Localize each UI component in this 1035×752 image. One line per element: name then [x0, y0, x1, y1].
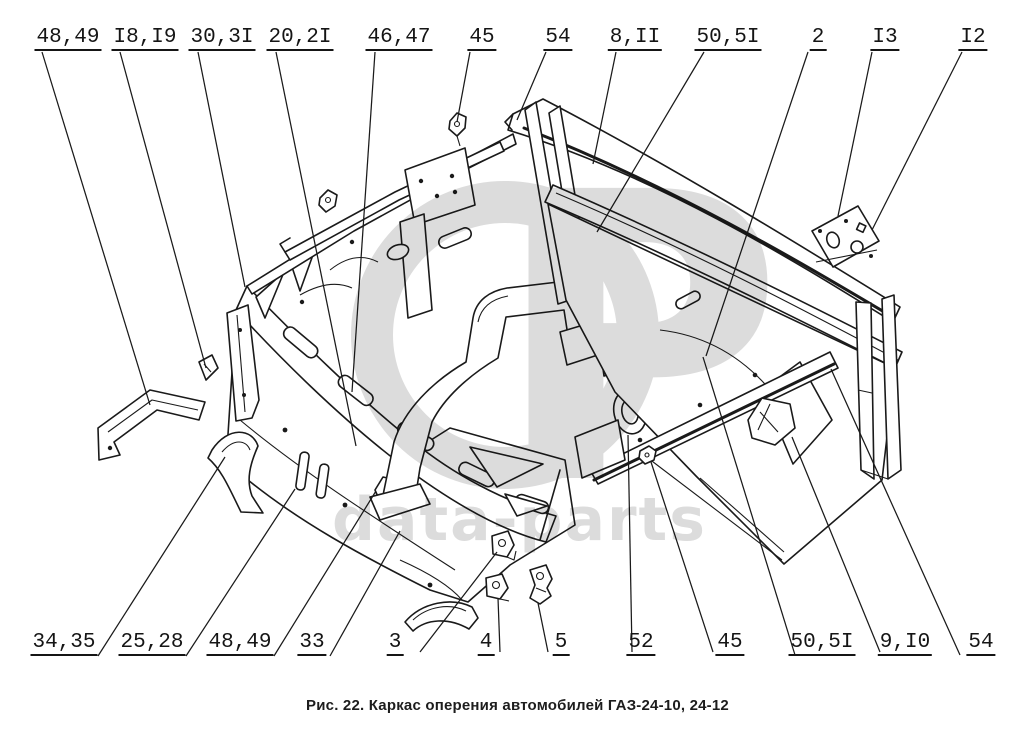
clip-left-rail	[319, 190, 337, 212]
part-label-top-12: I2	[958, 27, 987, 51]
part-label-bottom-25-28: 25,28	[118, 632, 185, 656]
leader-top-18-19	[120, 52, 206, 368]
part-label-top-2: 2	[810, 27, 827, 51]
leader-top-30-31	[198, 52, 245, 287]
part-label-bottom-4: 4	[478, 632, 495, 656]
part-label-bottom-9-10: 9,I0	[878, 632, 932, 656]
part-label-top-30-31: 30,3I	[188, 27, 255, 51]
part-label-bottom-48-49: 48,49	[206, 632, 273, 656]
bracket-plate	[812, 206, 879, 267]
part-label-bottom-3: 3	[387, 632, 404, 656]
figure-caption: Рис. 22. Каркас оперения автомобилей ГАЗ…	[0, 697, 1035, 714]
curved-strip	[405, 602, 478, 631]
part-label-top-18-19: I8,I9	[111, 27, 178, 51]
part-label-bottom-52: 52	[626, 632, 655, 656]
part-label-top-20-21: 20,2I	[266, 27, 333, 51]
part-label-top-54: 54	[543, 27, 572, 51]
part-label-bottom-50-51: 50,5I	[788, 632, 855, 656]
part-label-top-45: 45	[467, 27, 496, 51]
leader-top-45	[457, 52, 470, 122]
leader-top-13	[838, 52, 872, 216]
part-label-bottom-34-35: 34,35	[30, 632, 97, 656]
part-label-top-8-11: 8,II	[608, 27, 662, 51]
part-label-top-46-47: 46,47	[365, 27, 432, 51]
part-label-bottom-5: 5	[553, 632, 570, 656]
part-label-bottom-45: 45	[715, 632, 744, 656]
part-label-bottom-54: 54	[966, 632, 995, 656]
clip-18-19	[199, 355, 218, 380]
part-label-top-50-51: 50,5I	[694, 27, 761, 51]
watermark-text: data-parts	[332, 485, 707, 555]
figure-page: P data-parts 48,49 I8,I9 30,3I 20,2I 46,…	[0, 0, 1035, 752]
leader-top-12	[872, 52, 962, 230]
part-label-bottom-33: 33	[297, 632, 326, 656]
leader-bottom-4	[498, 598, 500, 652]
clamp-4	[486, 574, 508, 599]
leader-bottom-5	[538, 603, 548, 652]
part-label-top-13: I3	[870, 27, 899, 51]
part-label-top-48-49: 48,49	[34, 27, 101, 51]
watermark: P data-parts	[332, 109, 784, 572]
